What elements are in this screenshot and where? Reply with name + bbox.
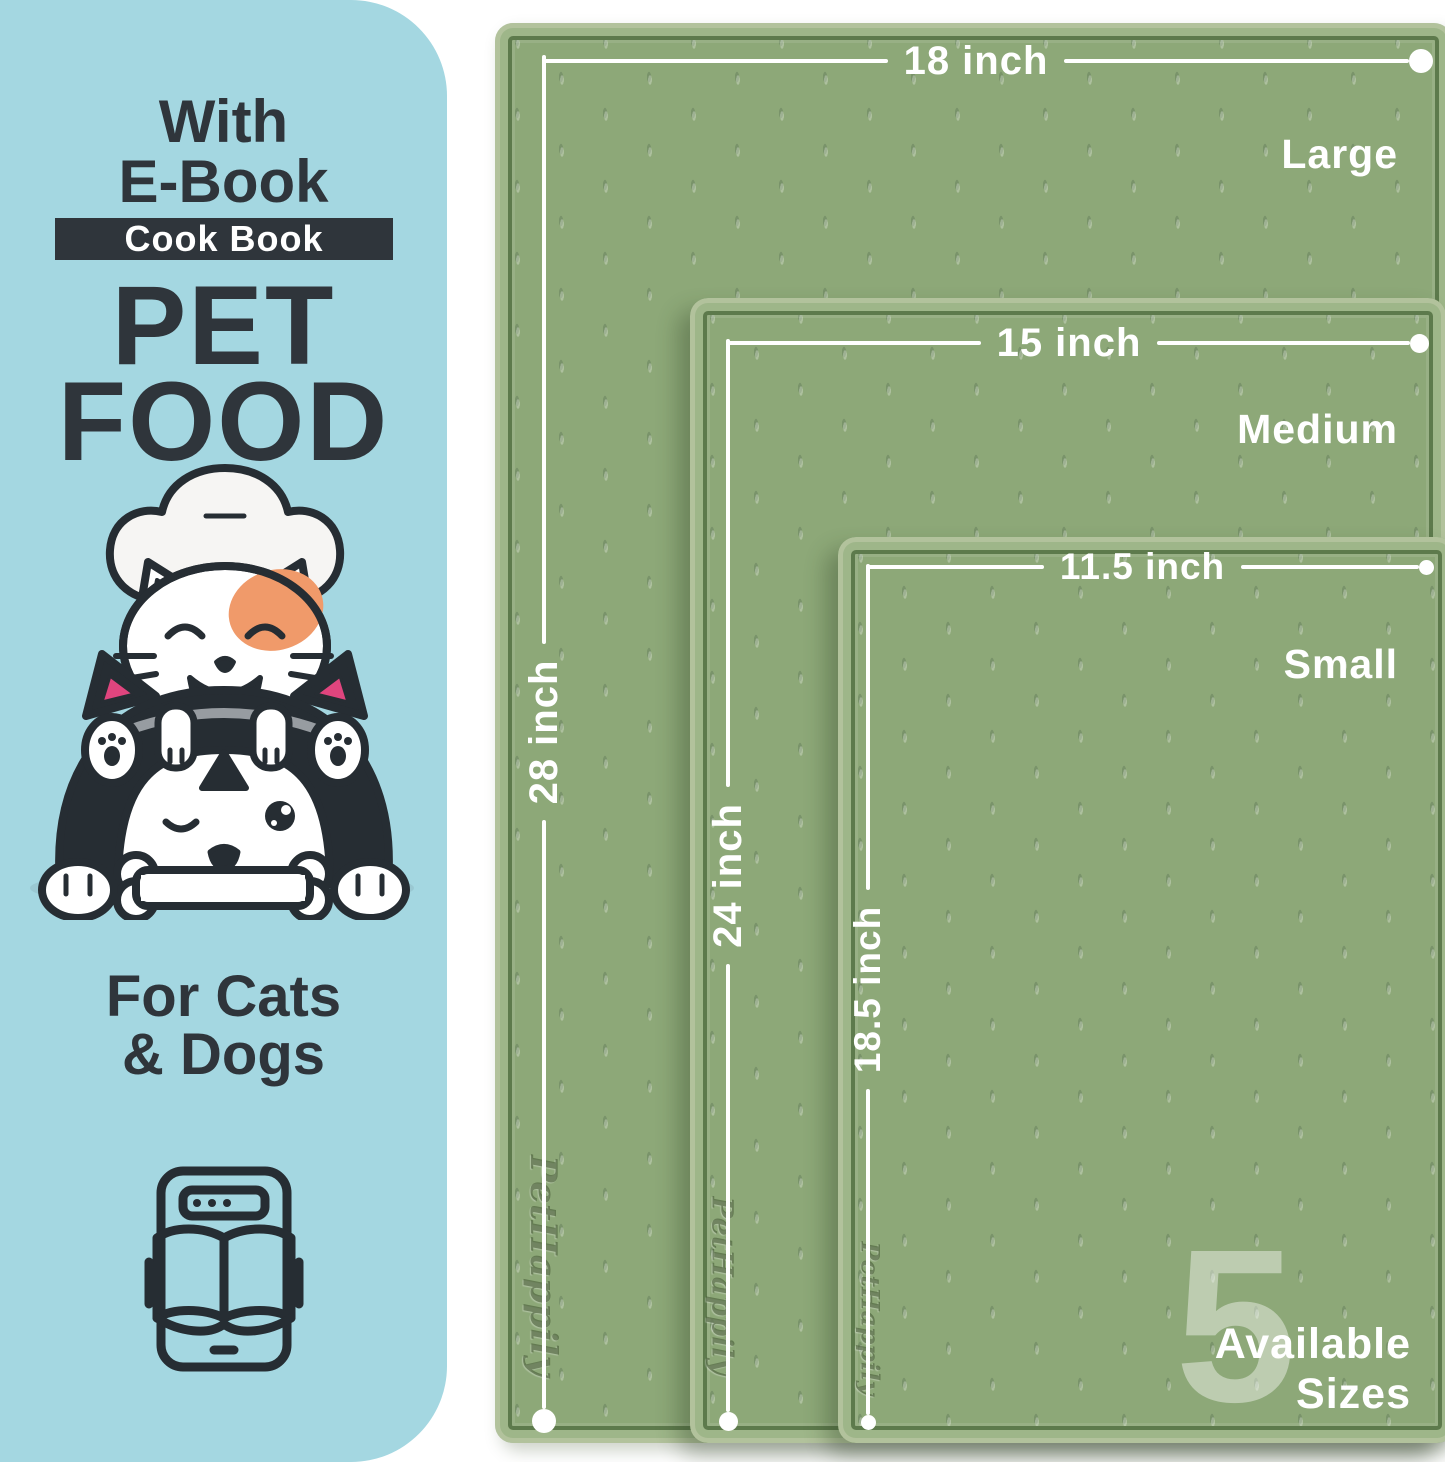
- cat-nose: [216, 658, 234, 671]
- dim-line-segment: [1241, 565, 1419, 569]
- dim-endpoint-dot: [1409, 49, 1433, 73]
- tablet-bar-dots: [193, 1199, 231, 1207]
- size-label-large: Large: [1281, 131, 1398, 178]
- dog-paw-left: [42, 862, 114, 918]
- size-label-small: Small: [1284, 641, 1398, 688]
- dim-line-segment: [866, 564, 870, 890]
- dim-endpoint-dot: [861, 1415, 876, 1430]
- dim-line-segment: [726, 964, 730, 1412]
- available-sizes-line1: Available: [1215, 1320, 1411, 1370]
- dim-large-width: 18 inch: [543, 38, 1433, 84]
- cat-paw-right: [253, 706, 289, 768]
- dog-paw-right: [334, 862, 406, 918]
- dim-label-large-length: 28 inch: [522, 644, 567, 821]
- product-banner: With E-Book Cook Book PET FOOD: [0, 0, 1445, 1462]
- dim-small-width: 11.5 inch: [866, 544, 1434, 590]
- dim-label-medium-length: 24 inch: [706, 787, 751, 964]
- book-left-page: [157, 1229, 224, 1318]
- dim-line-segment: [542, 820, 546, 1409]
- dog-nose: [210, 847, 238, 869]
- available-sizes-line2: Sizes: [1215, 1370, 1411, 1420]
- dim-endpoint-dot: [719, 1412, 738, 1431]
- cookbook-badge: Cook Book: [55, 218, 393, 260]
- dog-eye-highlight: [281, 805, 291, 815]
- dog-husky: [42, 654, 406, 919]
- dim-medium-length: 24 inch: [705, 339, 751, 1431]
- tagline-line1: With: [0, 92, 447, 152]
- dim-label-medium-width: 15 inch: [981, 321, 1158, 366]
- available-sizes-label: Available Sizes: [1215, 1320, 1411, 1420]
- size-label-medium: Medium: [1237, 406, 1398, 453]
- audience-line1: For Cats: [0, 968, 447, 1026]
- audience-line2: & Dogs: [0, 1026, 447, 1084]
- cookbook-badge-label: Cook Book: [124, 218, 323, 260]
- dim-label-small-width: 11.5 inch: [1044, 546, 1241, 588]
- dim-endpoint-dot: [1410, 334, 1429, 353]
- dim-medium-width: 15 inch: [728, 320, 1429, 366]
- cat-chef-dog-illustration: [20, 450, 427, 920]
- dim-line-segment: [1157, 341, 1410, 345]
- dim-large-length: 28 inch: [521, 55, 567, 1433]
- dim-line-segment: [866, 1089, 870, 1415]
- tagline-line2: E-Book: [0, 152, 447, 212]
- cat-paw-left: [158, 706, 194, 768]
- dim-small-length: 18.5 inch: [845, 564, 891, 1430]
- dog-eye-open: [265, 801, 295, 831]
- ebook-tablet-open-book-icon: [139, 1166, 309, 1372]
- dim-endpoint-dot: [532, 1409, 556, 1433]
- dim-endpoint-dot: [1419, 560, 1434, 575]
- book-right-page: [224, 1229, 291, 1318]
- left-info-panel: With E-Book Cook Book PET FOOD: [0, 0, 447, 1462]
- dim-label-large-width: 18 inch: [888, 39, 1065, 84]
- dim-line-segment: [866, 565, 1044, 569]
- dim-line-segment: [543, 59, 888, 63]
- dog-eye-highlight-2: [271, 820, 277, 826]
- dim-line-segment: [728, 341, 981, 345]
- book-bottom-curve: [157, 1318, 291, 1331]
- dim-line-segment: [726, 339, 730, 787]
- dim-label-small-length: 18.5 inch: [847, 890, 889, 1089]
- dim-line-segment: [542, 55, 546, 644]
- dim-line-segment: [1064, 59, 1409, 63]
